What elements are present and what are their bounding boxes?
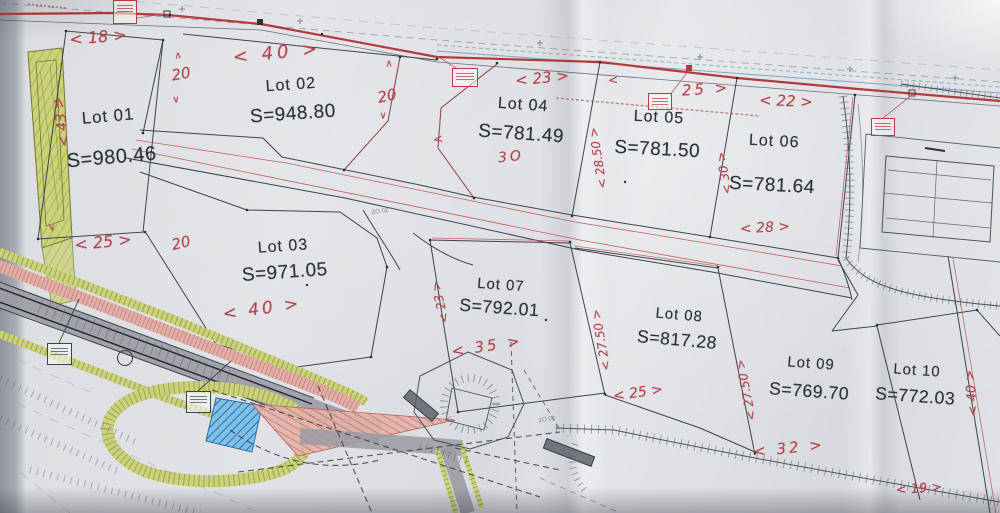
photo-vignette xyxy=(0,0,1000,513)
plan-photo: Lot 01S=980.46Lot 02S=948.80Lot 03S=971.… xyxy=(0,0,1000,513)
